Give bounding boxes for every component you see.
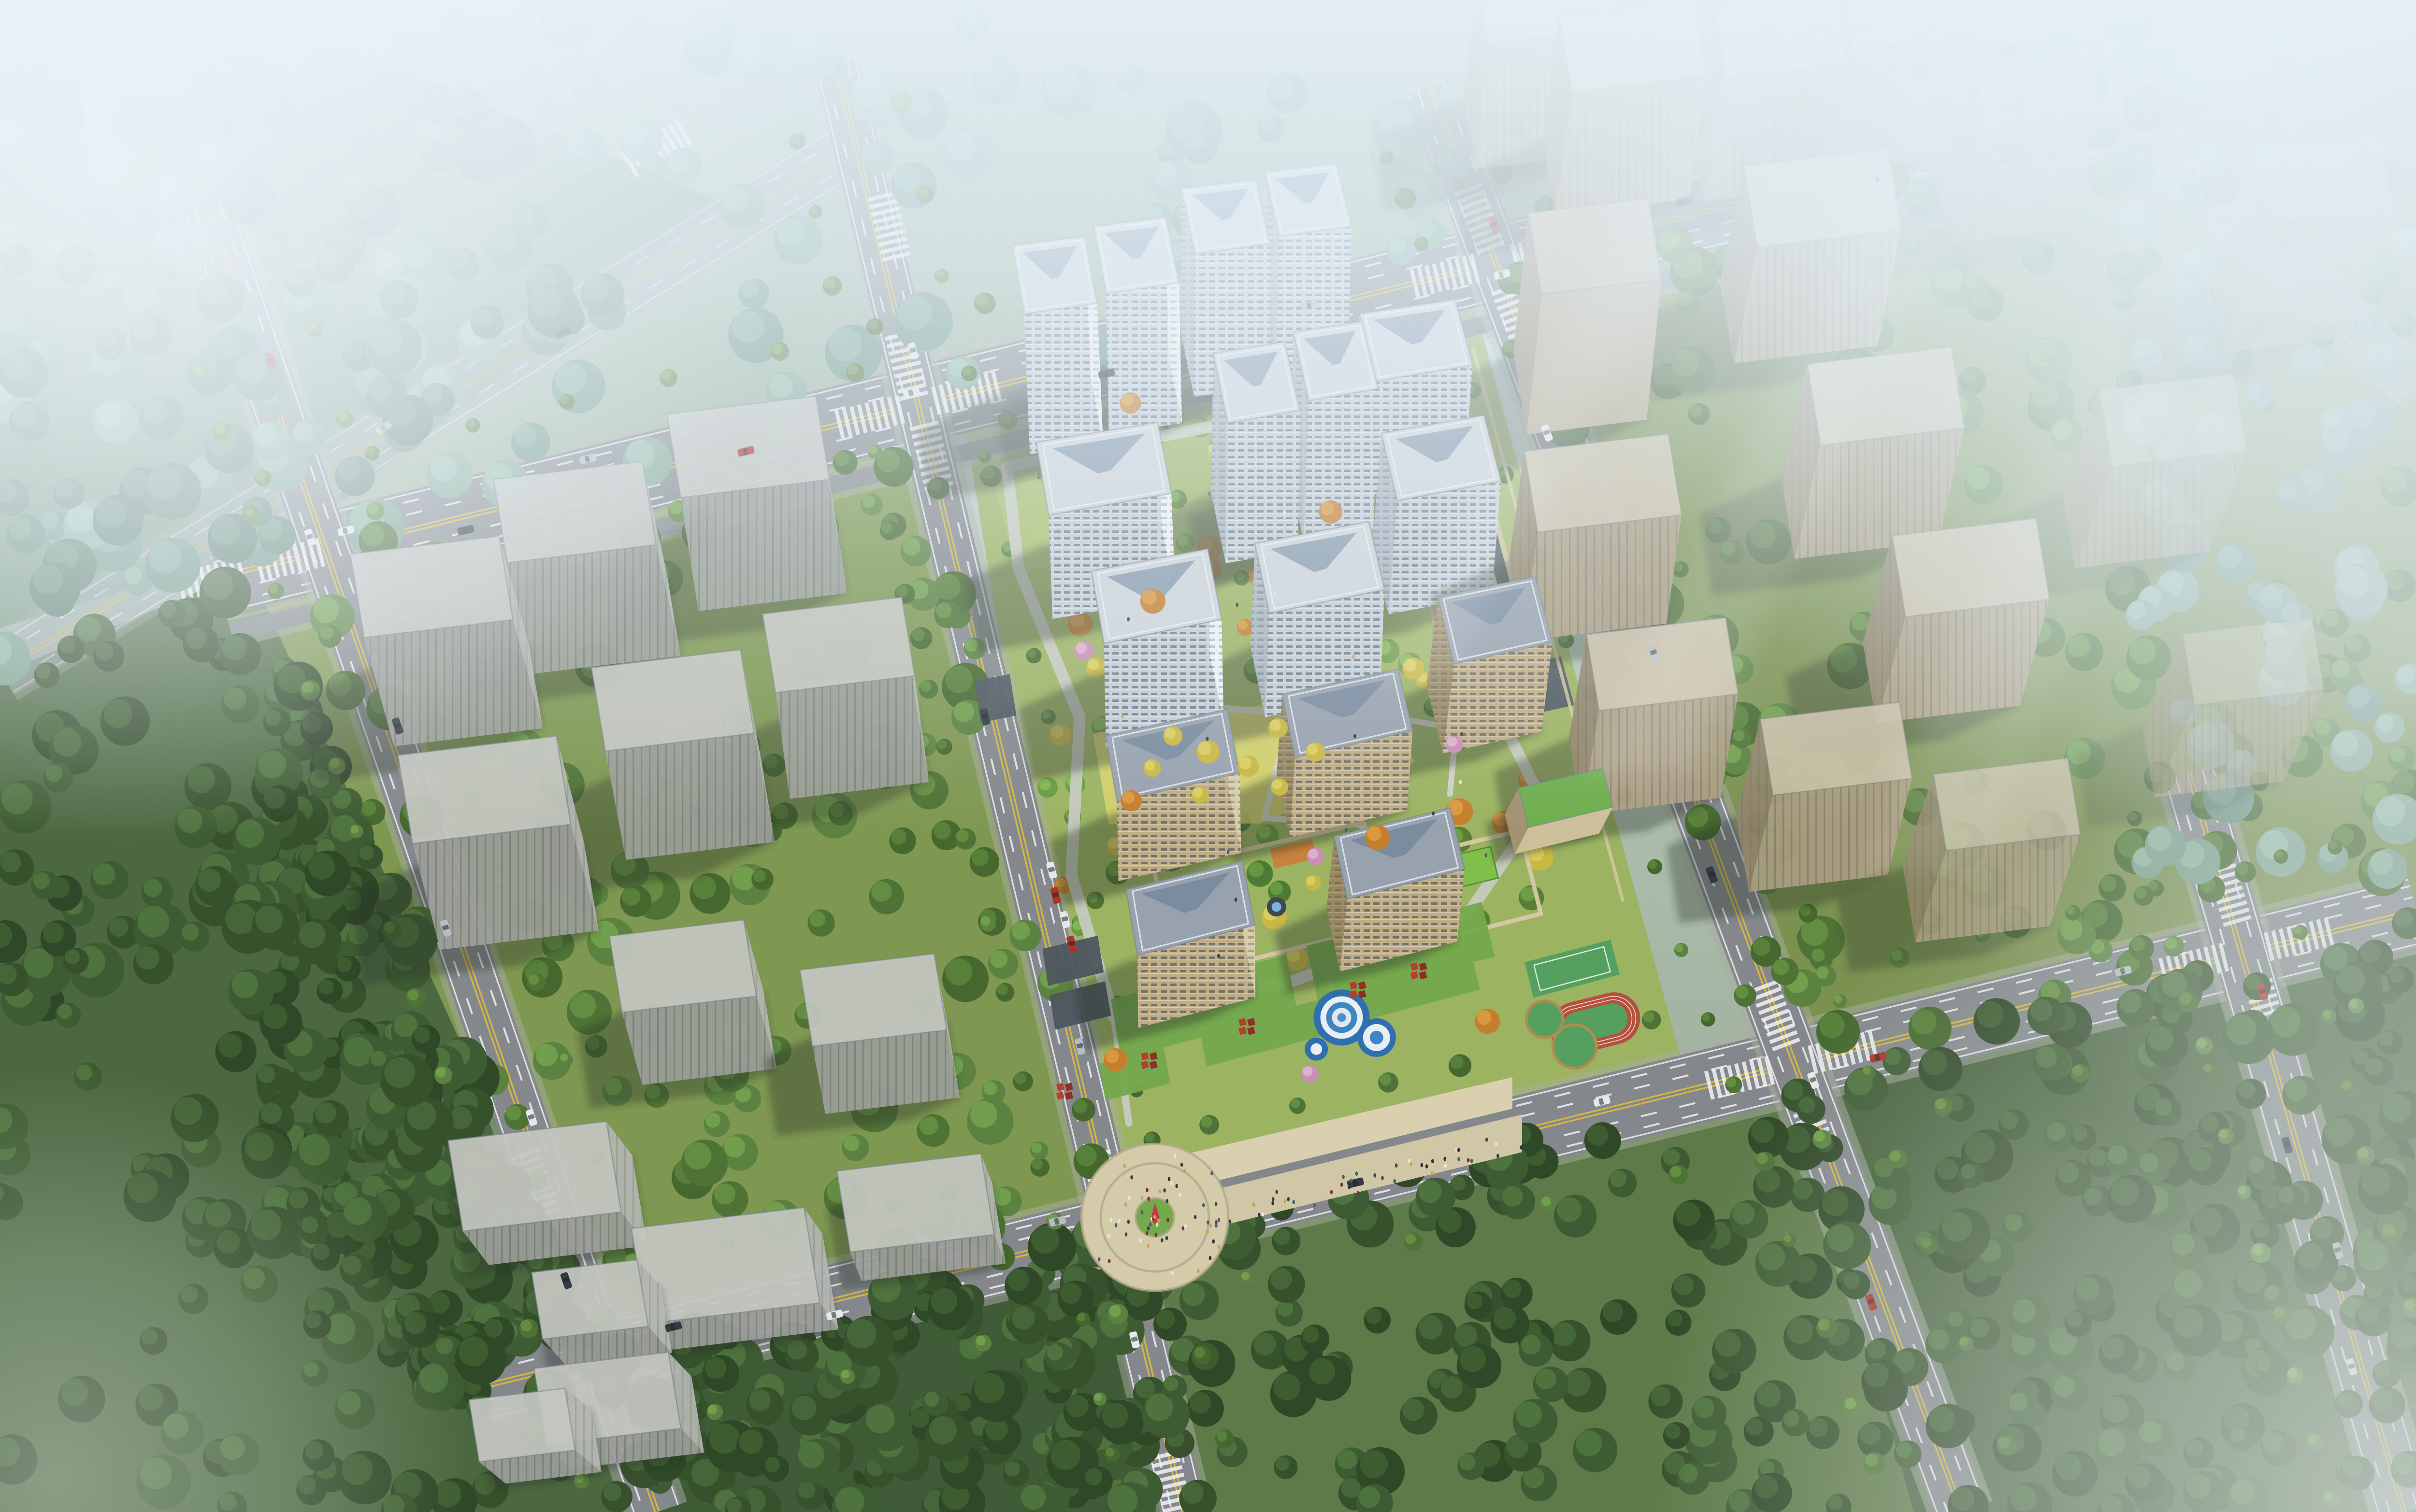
render-stage	[0, 0, 2416, 1512]
aerial-masterplan-rendering	[0, 0, 2416, 1512]
